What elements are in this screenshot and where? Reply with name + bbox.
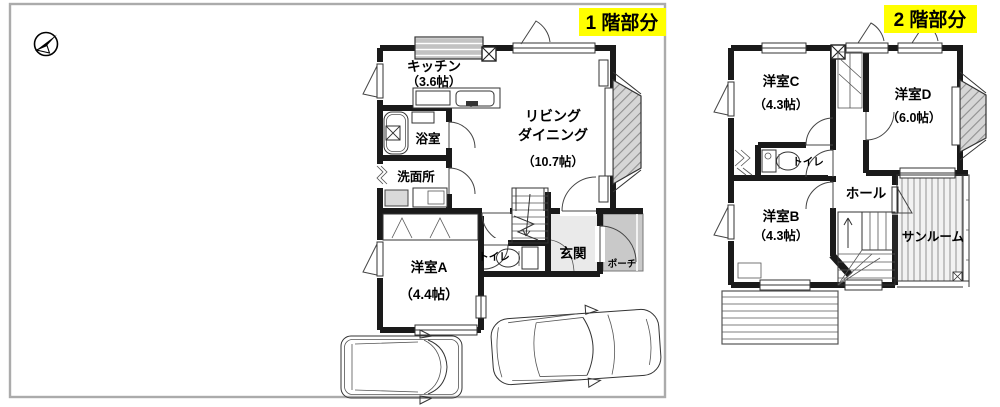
label-living-size: （10.7帖） — [522, 154, 584, 169]
floor1-tag: 1 階部分 — [579, 8, 666, 36]
label-toilet-1f: トイレ — [478, 251, 510, 263]
label-room-d: 洋室D — [895, 86, 932, 102]
living-side-box-top — [599, 60, 608, 86]
label-sunroom: サンルーム — [902, 230, 965, 244]
closet-marks — [735, 150, 752, 175]
label-bath: 浴室 — [415, 131, 441, 146]
kitchen-counter — [413, 88, 500, 108]
floor2-tag-text: 2 階部分 — [894, 8, 967, 31]
label-kitchen: キッチン — [407, 59, 461, 74]
label-room-a-size: （4.4帖） — [399, 286, 458, 302]
floor1-tag-text: 1 階部分 — [586, 11, 659, 34]
label-kitchen-size: （3.6帖） — [407, 74, 462, 89]
sunroom-floor — [897, 175, 963, 281]
kitchen-window — [415, 37, 483, 59]
label-entrance: 玄関 — [560, 245, 587, 261]
closet-cd — [838, 52, 862, 108]
deck-steps — [722, 291, 838, 344]
floor-plan-drawing: キッチン （3.6帖） リビング ダイニング （10.7帖） 浴室 洗面所 洋室… — [0, 0, 1000, 407]
label-living-2: ダイニング — [518, 127, 588, 143]
label-room-b-size: （4.3帖） — [754, 228, 809, 243]
living-side-box-bottom — [599, 176, 608, 202]
label-hall: ホール — [846, 186, 887, 201]
floor-plan-page: キッチン （3.6帖） リビング ダイニング （10.7帖） 浴室 洗面所 洋室… — [0, 0, 1000, 407]
compass-icon — [35, 33, 58, 56]
label-toilet-2f: トイレ — [792, 156, 824, 168]
label-room-c-size: （4.3帖） — [754, 97, 809, 112]
floor2-tag: 2 階部分 — [884, 5, 977, 33]
floor2-plan: 洋室C （4.3帖） 洋室D （6.0帖） トイレ ホール 洋室B （4.3帖）… — [714, 23, 986, 344]
room-b-box — [738, 263, 761, 278]
plan-frame — [10, 4, 665, 397]
washroom-fixtures — [385, 188, 447, 207]
label-room-a: 洋室A — [411, 259, 448, 275]
label-porch: ポーチ — [608, 258, 637, 270]
label-washroom: 洗面所 — [397, 169, 435, 184]
label-living-1: リビング — [525, 108, 581, 124]
living-bay-window — [605, 72, 641, 192]
label-room-b: 洋室B — [763, 208, 800, 224]
label-room-d-size: （6.0帖） — [887, 110, 942, 125]
label-room-c: 洋室C — [763, 73, 800, 89]
